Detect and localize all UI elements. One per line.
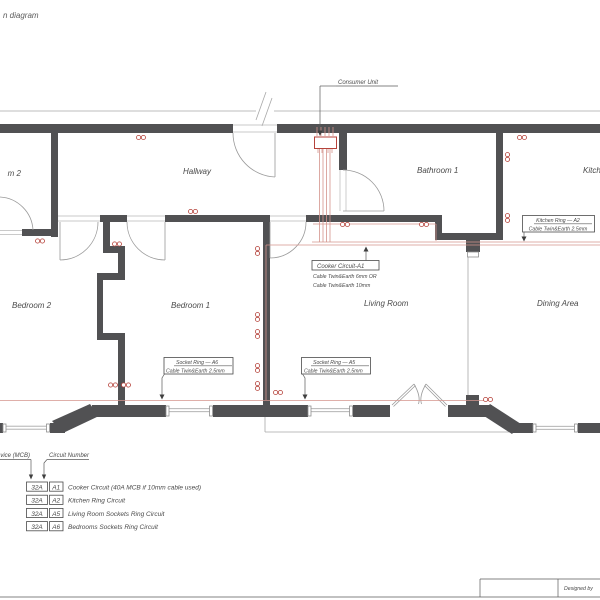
- circuit-legend: device (MCB) Circuit Number 32A A1 Cooke…: [0, 453, 201, 531]
- legend-row: 32A A2 Kitchen Ring Circuit: [27, 495, 127, 505]
- wall-segment: [339, 133, 347, 170]
- socket-outlets: [36, 135, 527, 401]
- legend-protective-device-label: device (MCB): [0, 453, 30, 459]
- window-bedroom1: [166, 405, 213, 417]
- legend-circuit: A5: [51, 511, 60, 518]
- wall-segment: [578, 423, 600, 433]
- legend-row: 32A A5 Living Room Sockets Ring Circuit: [27, 508, 166, 518]
- room-label-partial-2: m 2: [8, 169, 22, 178]
- wall-segment: [0, 124, 233, 133]
- socket-outlet-icon: [255, 382, 259, 391]
- title-block: Designed by: [0, 579, 600, 597]
- legend-desc: Cooker Circuit (40A MCB if 10mm cable us…: [68, 485, 201, 492]
- wall-segment: [22, 229, 58, 236]
- wall-segment: [51, 133, 58, 237]
- wall-diagonal: [52, 404, 99, 433]
- consumer-unit-label: Consumer Unit: [338, 80, 378, 86]
- wall-diagonal: [481, 404, 521, 434]
- legend-desc: Kitchen Ring Circuit: [68, 498, 126, 505]
- legend-circuit: A1: [51, 485, 60, 492]
- designed-by-label: Designed by: [564, 586, 593, 592]
- room-labels: m 2 Hallway Bathroom 1 Kitchen Bedroom 2…: [8, 166, 600, 310]
- french-doors: [392, 384, 447, 407]
- cooker-circuit-cable1: Cable Twin&Earth 6mm OR: [313, 274, 377, 280]
- room-label-bedroom2: Bedroom 2: [12, 301, 52, 310]
- entrance-door: [233, 133, 275, 177]
- socket-a6-title: Socket Ring — A6: [176, 360, 218, 366]
- wall-segment: [353, 405, 390, 417]
- walls: [0, 124, 600, 434]
- wall-segment: [165, 215, 263, 222]
- cooker-circuit-callout: Cooker Circuit-A1 Cable Twin&Earth 6mm O…: [312, 247, 379, 290]
- floor-plan-drawing: n diagram: [0, 0, 600, 600]
- room-label-dining-area: Dining Area: [537, 299, 579, 308]
- wall-segment: [213, 405, 308, 417]
- legend-mcb: 32A: [31, 498, 43, 505]
- room-label-living-room: Living Room: [364, 299, 409, 308]
- consumer-unit-box: [315, 137, 337, 149]
- cooker-circuit-title: Cooker Circuit-A1: [317, 264, 364, 270]
- socket-outlet-icon: [420, 222, 429, 226]
- wall-segment: [100, 215, 127, 222]
- socket-outlet-icon: [113, 242, 122, 246]
- wall-segment: [0, 423, 3, 433]
- socket-outlet-icon: [189, 209, 198, 213]
- sheet-title: n diagram: [3, 11, 39, 20]
- legend-mcb: 32A: [31, 511, 43, 518]
- socket-outlet-icon: [341, 222, 350, 226]
- room2-door: [0, 197, 33, 230]
- legend-desc: Bedrooms Sockets Ring Circuit: [68, 524, 159, 531]
- room-label-hallway: Hallway: [183, 167, 212, 176]
- socket-outlet-icon: [137, 135, 146, 139]
- kitchen-ring-cable: Cable Twin&Earth 2.5mm: [529, 227, 588, 233]
- socket-outlet-icon: [484, 397, 493, 401]
- circuit-cables: [0, 148, 600, 401]
- boundary-lines: [0, 92, 600, 432]
- socket-a5-cable: Cable Twin&Earth 2.5mm: [304, 369, 363, 375]
- bathroom-duct-cap: [468, 252, 479, 257]
- legend-desc: Living Room Sockets Ring Circuit: [68, 511, 166, 518]
- bedroom1-door: [127, 222, 165, 260]
- wall-segment: [92, 405, 166, 417]
- column: [466, 395, 479, 405]
- socket-ring-a6-callout: Socket Ring — A6 Cable Twin&Earth 2.5mm: [160, 358, 234, 400]
- legend-mcb: 32A: [31, 524, 43, 531]
- legend-circuit: A6: [51, 524, 60, 531]
- socket-a6-cable: Cable Twin&Earth 2.5mm: [166, 369, 225, 375]
- bedroom2-door: [60, 222, 98, 260]
- window-bedroom2: [3, 423, 50, 433]
- window-living-room: [308, 405, 353, 417]
- socket-outlet-icon: [255, 330, 259, 339]
- socket-outlet-icon: [518, 135, 527, 139]
- socket-outlet-icon: [255, 364, 259, 373]
- window-dining-area: [533, 423, 578, 433]
- legend-row: 32A A1 Cooker Circuit (40A MCB if 10mm c…: [27, 482, 202, 492]
- room-label-bedroom1: Bedroom 1: [171, 301, 210, 310]
- socket-outlet-icon: [255, 247, 259, 256]
- wall-segment: [435, 233, 503, 240]
- kitchen-ring-title: Kitchen Ring — A2: [536, 218, 580, 224]
- socket-outlet-icon: [109, 383, 118, 387]
- legend-circuit-number-label: Circuit Number: [49, 453, 90, 459]
- wall-segment: [277, 124, 600, 133]
- kitchen-ring-callout: Kitchen Ring — A2 Cable Twin&Earth 2.5mm: [522, 216, 595, 242]
- cooker-circuit-cable2: Cable Twin&Earth 10mm: [313, 283, 371, 289]
- legend-circuit: A2: [51, 498, 60, 505]
- wall-segment: [496, 133, 503, 240]
- socket-outlet-icon: [505, 153, 509, 162]
- socket-a5-title: Socket Ring — A5: [313, 360, 355, 366]
- wall-segment: [97, 273, 103, 340]
- room-label-bathroom1: Bathroom 1: [417, 166, 458, 175]
- socket-outlet-icon: [505, 214, 509, 223]
- socket-outlet-icon: [36, 239, 45, 243]
- living-room-door: [270, 222, 306, 258]
- break-line-icon: [256, 92, 272, 126]
- socket-outlet-icon: [274, 390, 283, 394]
- legend-mcb: 32A: [31, 485, 43, 492]
- socket-ring-a5-callout: Socket Ring — A5 Cable Twin&Earth 2.5mm: [302, 358, 371, 400]
- socket-outlet-icon: [255, 313, 259, 322]
- socket-outlet-icon: [122, 383, 131, 387]
- room-label-kitchen: Kitchen: [583, 166, 600, 175]
- wall-segment: [118, 333, 125, 405]
- legend-row: 32A A6 Bedrooms Sockets Ring Circuit: [27, 522, 160, 532]
- drawing-sheet: n diagram: [0, 0, 600, 600]
- bathroom-door: [343, 170, 384, 211]
